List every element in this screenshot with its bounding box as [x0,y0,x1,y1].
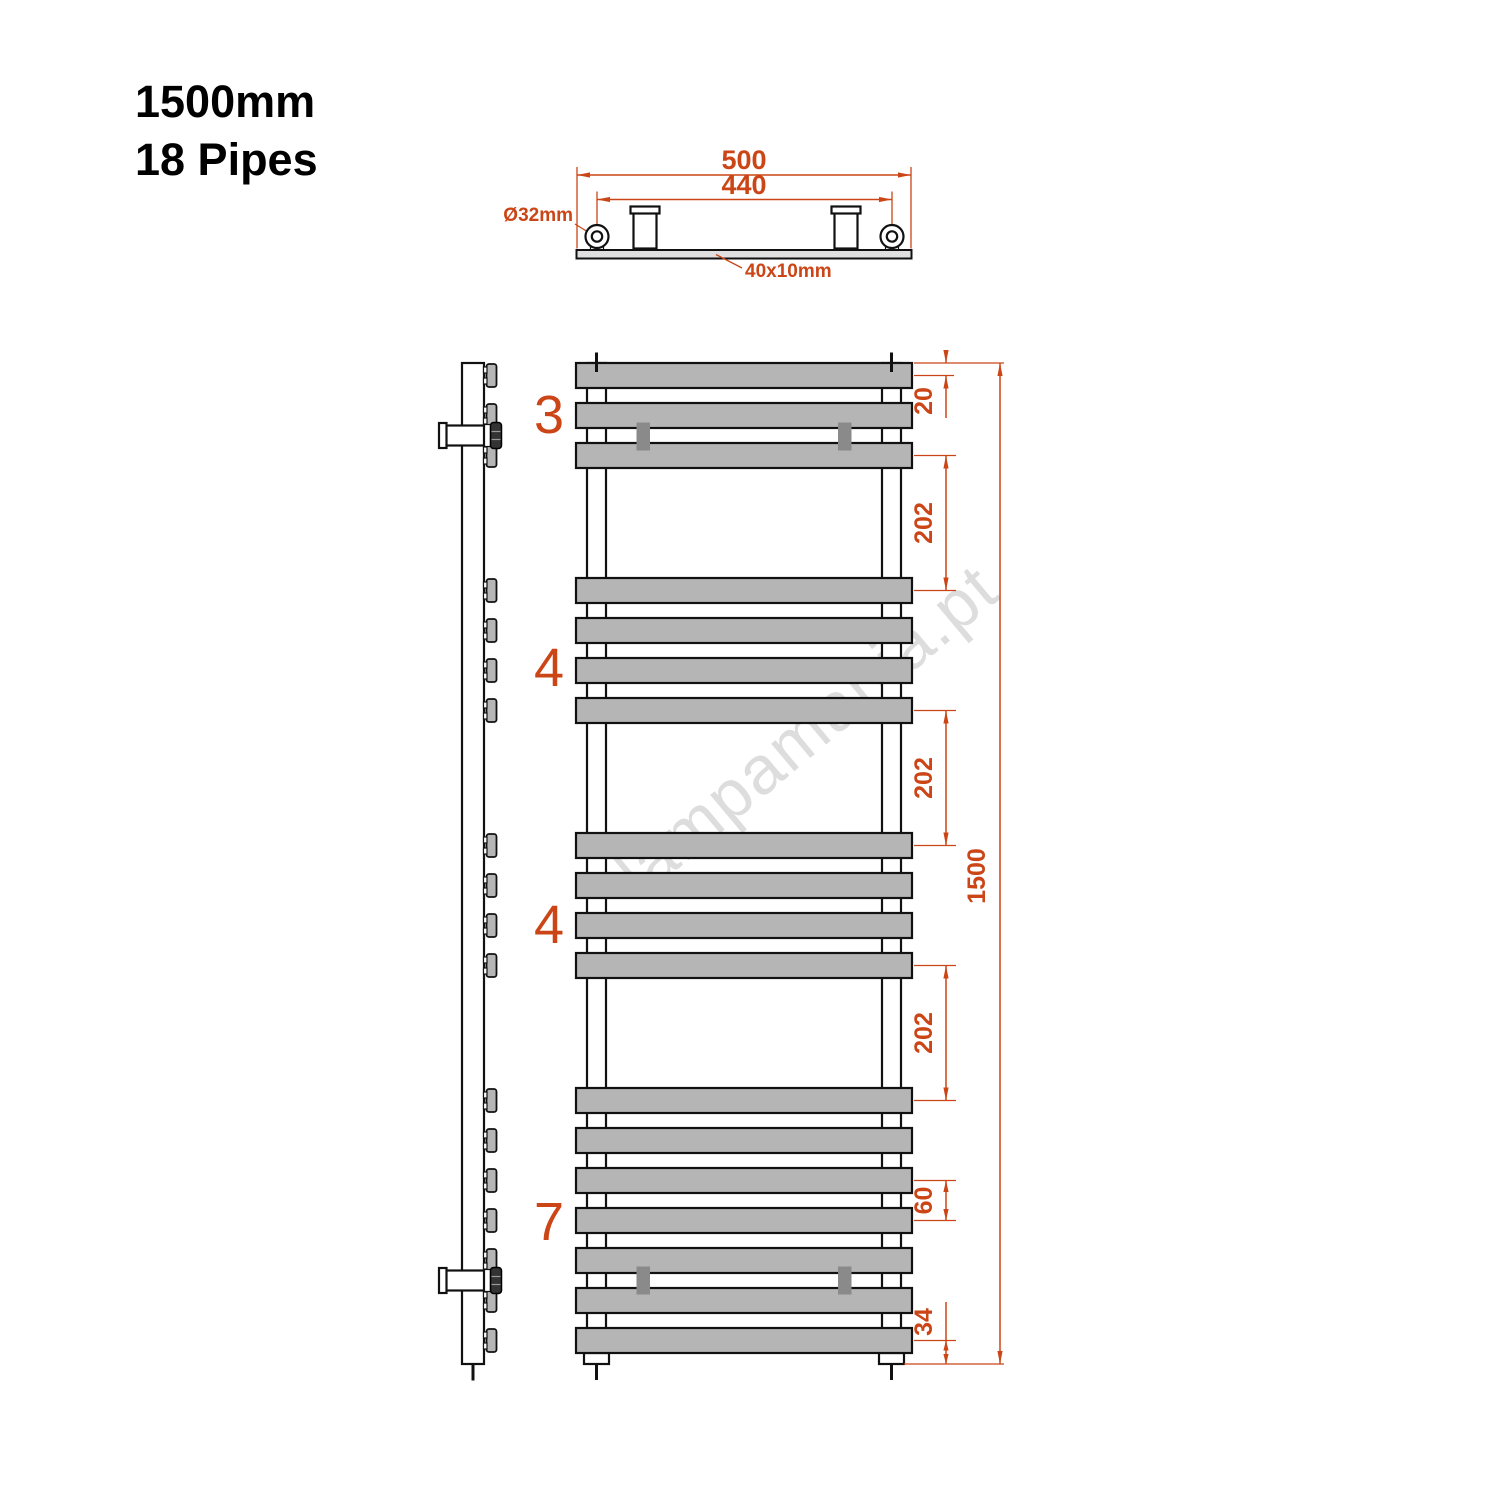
arrow-1500-top [997,363,1002,376]
weld-nub [484,418,488,424]
top-view: 500 440 Ø32mm 40x10mm [503,145,911,282]
weld-nub [484,367,488,373]
front-bracket-top-right [838,423,852,451]
weld-nub [484,1132,488,1138]
drawing-canvas: 1500mm 18 Pipes lampamania.pt 500 440 Ø3… [0,0,1500,1500]
group-label: 7 [534,1192,564,1252]
weld-nub [484,673,488,679]
arrow-60-top [943,1181,948,1193]
weld-nub [484,837,488,843]
weld-nub [484,1223,488,1229]
weld-nub [484,1263,488,1269]
front-view: 3447 [534,353,912,1381]
front-foot-right [879,1353,904,1364]
arrow-500-right [898,172,911,177]
side-pipe-end [487,659,497,682]
weld-nub [484,1252,488,1258]
arrow-20-top [943,350,948,363]
side-pipe-end [487,1209,497,1232]
weld-nub [484,1343,488,1349]
weld-nub [484,1332,488,1338]
weld-nub [484,702,488,708]
side-bracket-cap [439,1268,447,1293]
pipe [576,578,912,603]
weld-nub [484,713,488,719]
weld-nub [484,593,488,599]
side-view [439,363,502,1381]
dim-60-label: 60 [910,1187,938,1215]
weld-nub [484,1212,488,1218]
dim-202a-label: 202 [910,502,938,544]
weld-nub [484,622,488,628]
dim-profile-label: 40x10mm [745,261,832,282]
arrow-202b-top [943,711,948,724]
pipe [576,1208,912,1233]
side-pipe-end [487,364,497,387]
weld-nub [484,1103,488,1109]
weld-nub [484,888,488,894]
side-bracket-spacer [485,1270,491,1292]
technical-drawing: 1500mm 18 Pipes lampamania.pt 500 440 Ø3… [0,0,1500,1500]
plan-bracket-right [835,213,858,249]
weld-nub [484,582,488,588]
collector-ring-right-outer [881,225,904,248]
side-pipe-end [487,579,497,602]
pipe [576,1288,912,1313]
side-bracket-wallplate [491,423,502,449]
front-foot-left [584,1353,609,1364]
dim-20-label: 20 [910,387,938,415]
dim-202c-label: 202 [910,1012,938,1054]
plan-bracket-left-flange [631,207,660,214]
side-bracket-spacer [485,425,491,447]
dim-440-label: 440 [721,170,766,200]
weld-nub [484,662,488,668]
pipe [576,658,912,683]
side-pipe-end [487,1089,497,1112]
side-pipe-end [487,699,497,722]
pipe [576,1128,912,1153]
weld-nub [484,458,488,464]
pipe [576,443,912,468]
pipe [576,1168,912,1193]
dim-diameter-label: Ø32mm [503,205,573,226]
arrow-202c-bottom [943,1088,948,1101]
weld-nub [484,917,488,923]
arrow-34-top [943,1341,948,1351]
page-title-height: 1500mm [135,76,315,127]
pipe [576,363,912,388]
side-pipe-end [487,874,497,897]
side-pipe-tabs [484,364,497,1352]
arrow-202c-top [943,966,948,979]
dimensions: 20 202 202 202 60 34 1500 [904,350,1004,1364]
pipe [576,913,912,938]
pipe [576,1088,912,1113]
arrow-20-bottom [943,376,948,389]
arrow-440-left [597,197,610,202]
arrow-500-left [577,172,590,177]
weld-nub [484,877,488,883]
side-pipe-end [487,1329,497,1352]
arrow-202b-bottom [943,833,948,846]
group-label: 4 [534,638,564,698]
weld-nub [484,633,488,639]
side-bracket-wallplate [491,1268,502,1294]
dim-202b-label: 202 [910,757,938,799]
weld-nub [484,928,488,934]
side-bracket-tube [443,426,485,446]
title-block: 1500mm 18 Pipes [135,76,318,185]
weld-nub [484,1303,488,1309]
front-bracket-bottom-right [838,1267,852,1295]
weld-nub [484,968,488,974]
side-pipe-end [487,834,497,857]
weld-nub [484,447,488,453]
weld-nub [484,378,488,384]
pipe [576,1248,912,1273]
plan-bracket-left [634,213,657,249]
pipe [576,1328,912,1353]
front-bracket-top-left [637,423,651,451]
side-pipe-end [487,1169,497,1192]
weld-nub [484,1183,488,1189]
front-bracket-bottom-left [637,1267,651,1295]
side-bracket-cap [439,423,447,448]
weld-nub [484,407,488,413]
collector-ring-left-outer [586,225,609,248]
side-bracket-tube [443,1271,485,1291]
pipe [576,873,912,898]
group-label: 3 [534,385,564,445]
side-pipe-end [487,1129,497,1152]
arrow-202a-top [943,456,948,469]
weld-nub [484,1092,488,1098]
arrow-60-bottom [943,1209,948,1221]
weld-nub [484,1292,488,1298]
side-pipe-end [487,619,497,642]
weld-nub [484,1143,488,1149]
page-title-pipes: 18 Pipes [135,134,318,185]
dim-1500-label: 1500 [963,848,991,904]
arrow-440-right [879,197,892,202]
dim-34-label: 34 [910,1308,938,1336]
weld-nub [484,957,488,963]
side-pipe-end [487,954,497,977]
arrow-1500-bottom [997,1351,1002,1364]
side-collector-plate [462,363,484,1364]
arrow-34-bottom [943,1354,948,1364]
pipe [576,618,912,643]
pipe [576,698,912,723]
pipe [576,403,912,428]
weld-nub [484,1172,488,1178]
plan-bracket-right-flange [832,207,861,214]
pipe-group-labels: 3447 [534,385,564,1252]
group-label: 4 [534,895,564,955]
pipe [576,953,912,978]
side-pipe-end [487,914,497,937]
plan-pipe-plate [577,250,912,259]
weld-nub [484,848,488,854]
pipe [576,833,912,858]
front-pipes [576,363,912,1353]
